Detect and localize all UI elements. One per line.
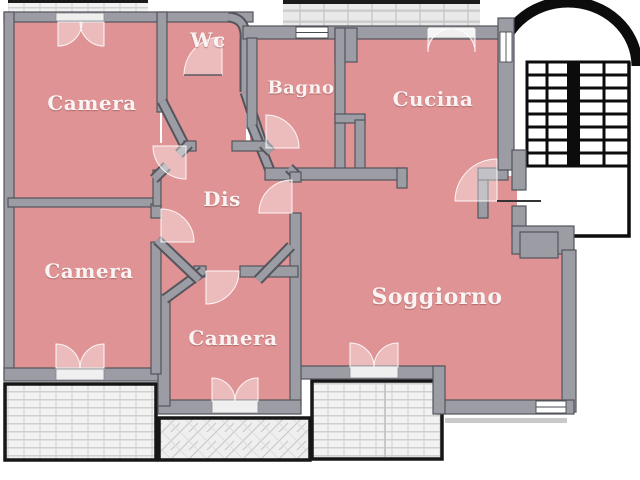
window-soggiorno-bottom: [536, 401, 566, 413]
room-label-dis: Dis: [203, 187, 241, 211]
room-label-camera-w: Camera: [44, 259, 133, 283]
room-label-camera-s: Camera: [188, 326, 277, 350]
ledge: [445, 418, 567, 423]
window-bagno: [296, 27, 328, 38]
french-door-opening-soggiorno: [350, 367, 398, 378]
floorplan-drawing: [0, 0, 640, 480]
terrace-top-left: [8, 0, 148, 13]
french-door-opening-camera-w: [56, 369, 104, 380]
balcony-bottom-left: [5, 384, 156, 460]
room-label-camera-nw: Camera: [47, 91, 136, 115]
window-cucina-right: [500, 32, 512, 62]
floorplan: Camera Wc Bagno Cucina Dis Camera Camera…: [0, 0, 640, 480]
room-label-soggiorno: Soggiorno: [371, 284, 502, 310]
room-label-cucina: Cucina: [393, 87, 474, 111]
room-label-wc: Wc: [190, 28, 226, 52]
french-door-opening-camera-nw: [56, 13, 104, 21]
terrace-top-center: [283, 0, 480, 28]
french-door-opening-camera-s: [212, 401, 258, 413]
room-label-bagno: Bagno: [267, 78, 334, 99]
balcony-bottom-right: [312, 381, 442, 459]
balcony-bottom-center: [159, 418, 310, 460]
